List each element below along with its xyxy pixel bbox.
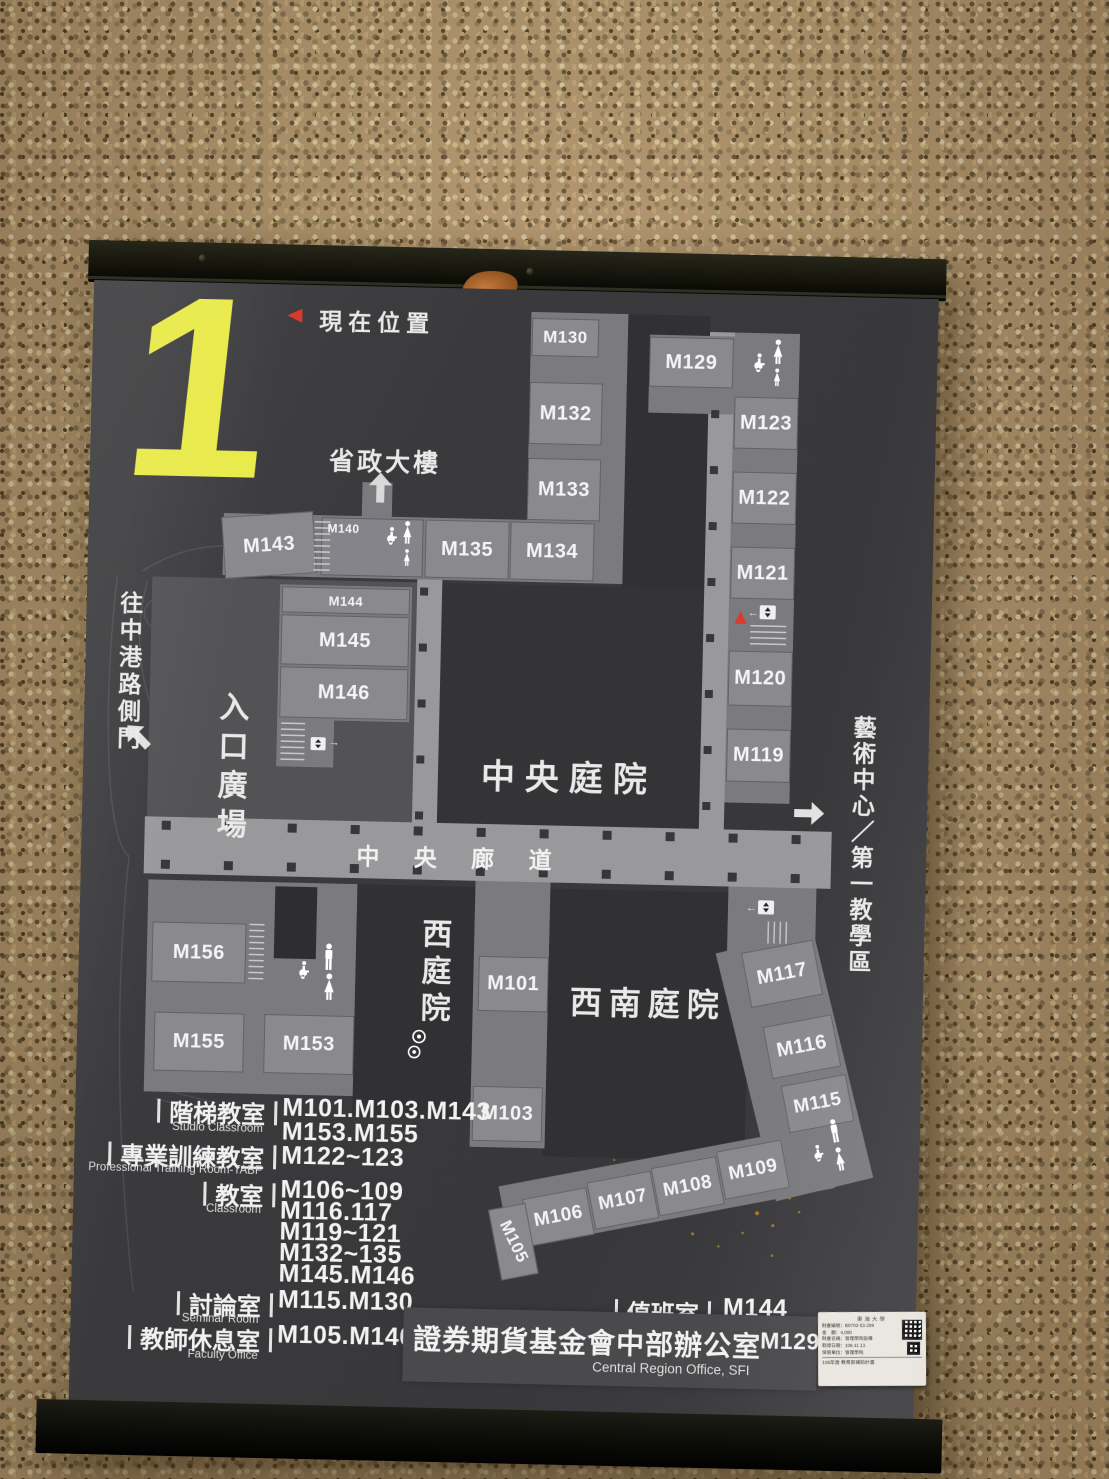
room-m133: M133	[527, 458, 601, 522]
floor-map: M130 M132 M133 M134 M135 M140 M143 M144 …	[69, 280, 939, 1419]
label-gate-side: 往中港路側門	[109, 590, 147, 753]
tree-icon	[411, 1029, 427, 1045]
room-m122: M122	[732, 472, 797, 525]
stairs-east	[750, 625, 786, 646]
room-m132: M132	[528, 382, 602, 446]
room-m156: M156	[151, 921, 246, 983]
room-m144: M144	[282, 586, 411, 615]
inner-shaft	[274, 886, 318, 959]
stairs-southeast	[767, 921, 787, 943]
qr-code-icon	[902, 1320, 922, 1340]
room-m101: M101	[478, 956, 549, 1013]
label-art-center: 藝術中心／第一教學區	[841, 715, 881, 976]
accessible-toilet-icon	[296, 961, 310, 979]
floor-number: 1	[113, 257, 285, 518]
current-position-key-icon	[287, 308, 302, 322]
elevator-icon	[760, 605, 776, 619]
legend-faculty-values: M105.M140	[277, 1320, 414, 1352]
left-arrow-icon: ←	[746, 902, 757, 914]
label-central-courtyard: 中央庭院	[437, 748, 700, 803]
label-entrance-plaza: 入口廣場	[205, 691, 253, 848]
legend-office-zh: 證券期貨基金會中部辦公室	[413, 1318, 762, 1366]
accessible-toilet-icon	[751, 353, 766, 372]
women-toilet-icon	[323, 973, 336, 1000]
asset-label-sticker: 東海大學 財產編號：B0703-03-208 金 額：4,000 財產名稱：管理…	[818, 1312, 926, 1386]
women-toilet-icon	[402, 521, 413, 544]
room-m120: M120	[728, 650, 793, 706]
floor-sign-board: M130 M132 M133 M134 M135 M140 M143 M144 …	[67, 240, 939, 1474]
photo: { "colors": {"accent_yellow": "#e9ea4a",…	[0, 0, 1109, 1479]
room-m121: M121	[730, 547, 795, 600]
room-m129: M129	[649, 337, 734, 389]
right-arrow-icon	[794, 800, 825, 827]
girl-toilet-icon	[773, 368, 781, 386]
room-m134: M134	[509, 522, 594, 582]
label-west-courtyard: 西庭院	[409, 917, 456, 1029]
screw-icon	[526, 268, 533, 275]
right-arrow-icon: →	[329, 736, 340, 748]
legend-seminar-values: M115.M130	[278, 1285, 414, 1317]
sticker-footer: 106年度 教育部補助計畫	[822, 1357, 922, 1366]
elevator-icon	[758, 900, 774, 914]
stairs-north	[314, 521, 331, 573]
current-position-marker	[734, 611, 746, 624]
room-m119: M119	[726, 728, 791, 782]
room-m130: M130	[531, 318, 599, 358]
left-arrow-icon: ←	[748, 607, 759, 619]
qr-code-icon	[907, 1342, 920, 1355]
room-m146: M146	[279, 666, 408, 720]
stairs-m156	[248, 924, 264, 984]
girl-toilet-icon	[403, 549, 411, 566]
room-m153: M153	[263, 1014, 354, 1075]
legend-office-value: M129	[760, 1327, 820, 1355]
elevator-icon	[310, 737, 325, 750]
room-m155: M155	[153, 1012, 244, 1073]
room-m123: M123	[733, 397, 798, 450]
label-southwest-courtyard: 西南庭院	[547, 976, 748, 1027]
room-m135: M135	[424, 520, 509, 580]
accessible-toilet-icon	[384, 527, 398, 545]
m130-notch	[548, 356, 584, 370]
label-provincial-building: 省政大樓	[318, 441, 453, 480]
room-m145: M145	[280, 614, 409, 667]
legend-training-values: M122~123	[281, 1141, 404, 1173]
men-toilet-icon	[322, 943, 335, 970]
tree-icon	[406, 1045, 421, 1060]
women-toilet-icon	[772, 339, 784, 364]
stairs-west-stub	[280, 722, 305, 763]
current-position-label: 現在位置	[319, 302, 436, 339]
